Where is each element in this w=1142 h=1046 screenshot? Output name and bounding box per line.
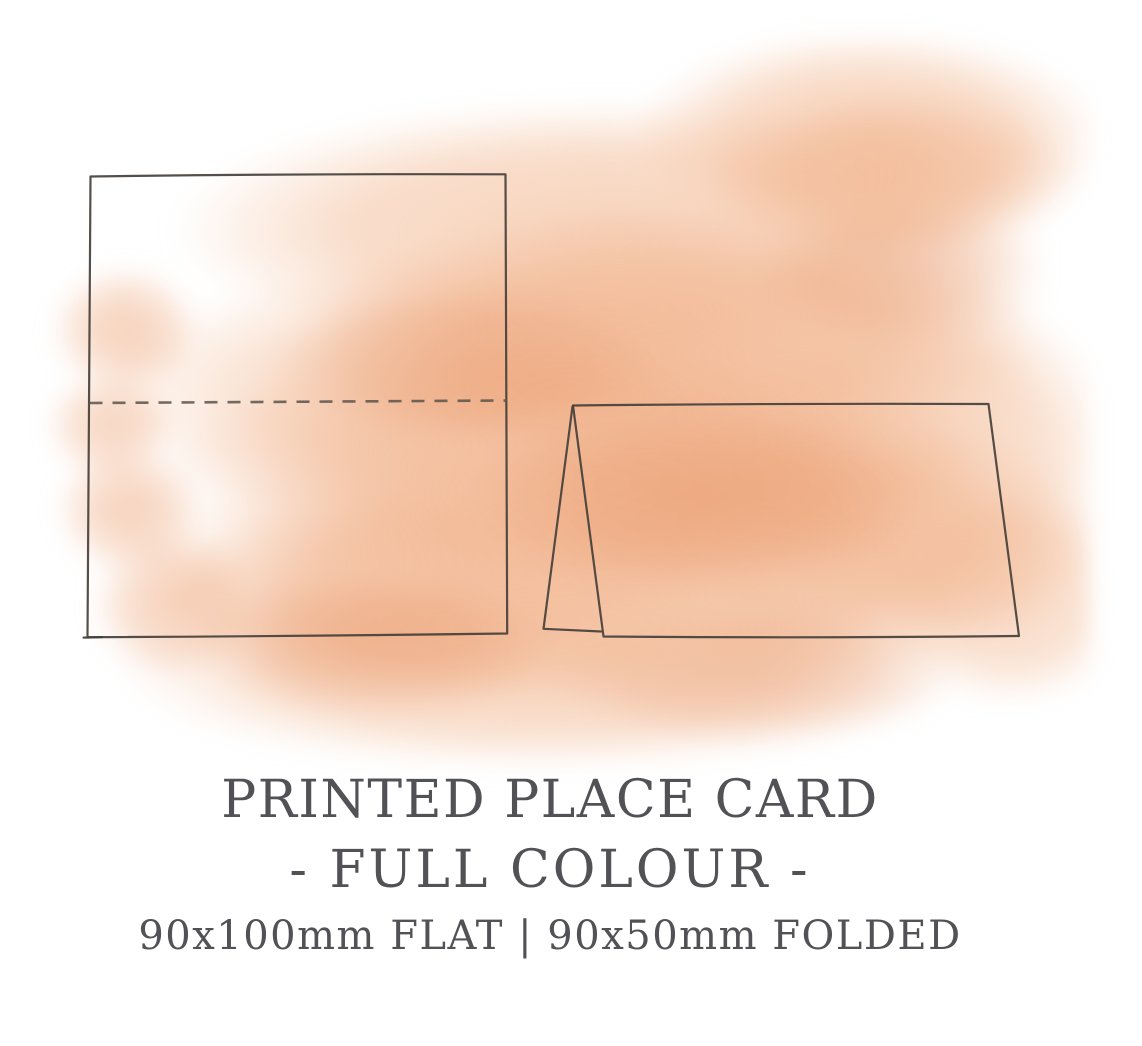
flat-card-sketch-overshoot — [84, 637, 103, 638]
flat-card-fold-line — [90, 401, 508, 404]
product-subtitle: - FULL COLOUR - — [0, 840, 1100, 900]
folded-card-side-fold-outline — [544, 407, 602, 632]
product-dimensions: 90x100mm FLAT | 90x50mm FOLDED — [0, 908, 1100, 964]
product-title: PRINTED PLACE CARD — [0, 770, 1100, 830]
flat-card-outline — [88, 174, 508, 637]
folded-card-front-outline — [573, 404, 1019, 637]
product-diagram-image: PRINTED PLACE CARD - FULL COLOUR - 90x10… — [0, 0, 1142, 1046]
